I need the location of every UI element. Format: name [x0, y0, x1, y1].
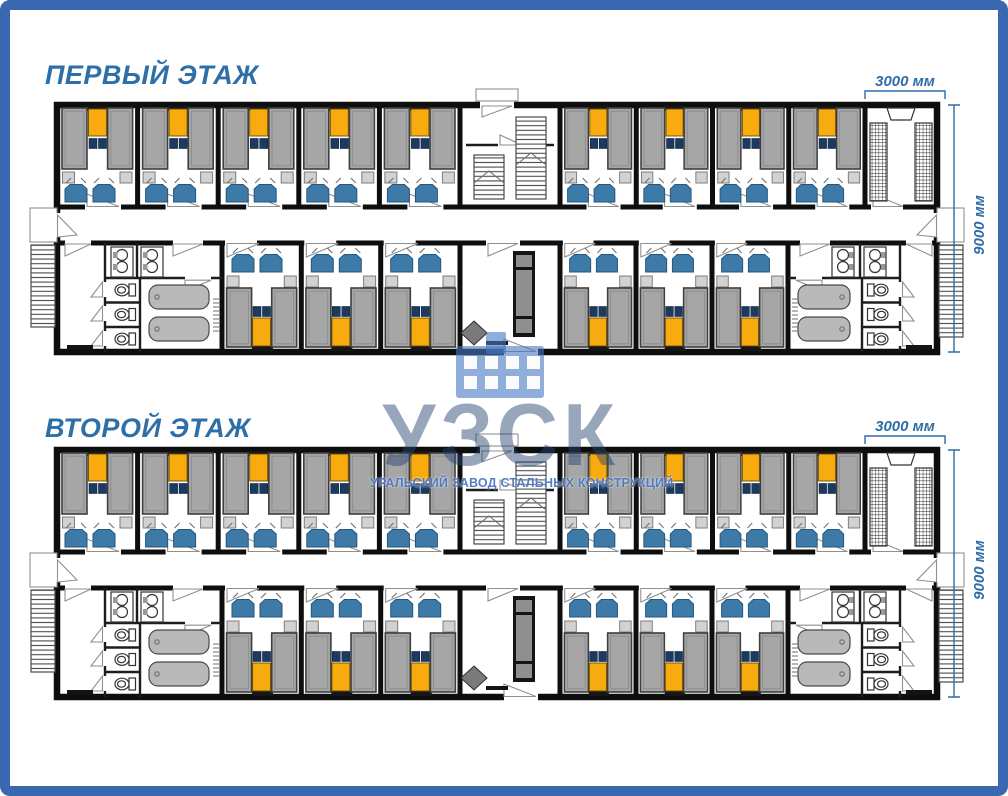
floor-plan-first — [30, 89, 964, 356]
floor-plan-second — [30, 434, 964, 701]
floor2-depth-dimension-label: 9000 мм — [971, 540, 988, 600]
floor2-width-dimension-label: 3000 мм — [875, 418, 935, 435]
floor1-depth-dimension-label: 9000 мм — [971, 195, 988, 255]
floor2-title: ВТОРОЙ ЭТАЖ — [45, 413, 251, 444]
floor1-title: ПЕРВЫЙ ЭТАЖ — [45, 60, 259, 91]
floor1-width-dimension-label: 3000 мм — [875, 73, 935, 90]
floor-plans-drawing: 3000 мм 9000 мм 3000 мм 9000 мм — [0, 0, 1008, 796]
poster-canvas: ПЕРВЫЙ ЭТАЖ ВТОРОЙ ЭТАЖ — [0, 0, 1008, 796]
